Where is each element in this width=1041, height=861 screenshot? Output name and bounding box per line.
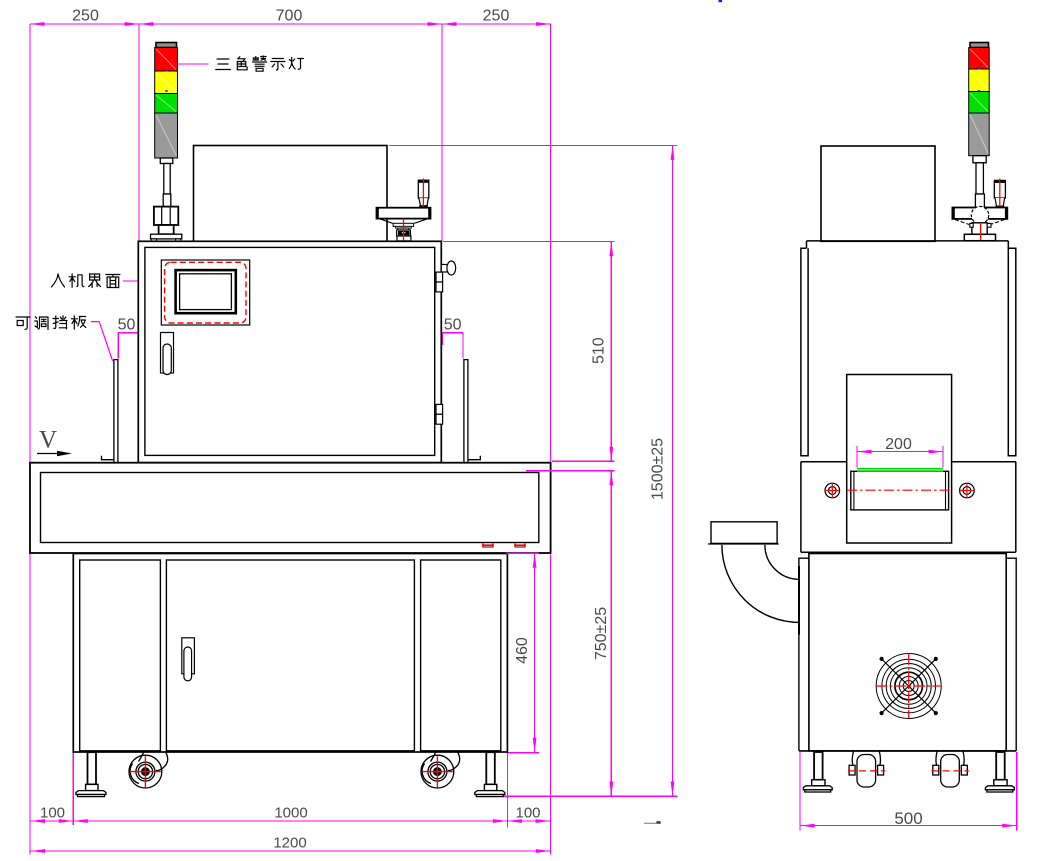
svg-text:1500±25: 1500±25 — [650, 438, 667, 500]
svg-text:1200: 1200 — [273, 835, 306, 852]
svg-text:50: 50 — [444, 317, 462, 334]
svg-text:1000: 1000 — [274, 805, 307, 822]
svg-text:460: 460 — [514, 637, 531, 664]
svg-text:700: 700 — [276, 8, 303, 25]
svg-text:500: 500 — [894, 809, 922, 828]
svg-text:750±25: 750±25 — [593, 607, 610, 660]
svg-text:V: V — [39, 427, 57, 454]
svg-text:250: 250 — [483, 8, 510, 25]
svg-text:100: 100 — [40, 805, 65, 822]
svg-text:200: 200 — [885, 436, 912, 453]
svg-text:250: 250 — [72, 8, 99, 25]
svg-text:50: 50 — [118, 317, 136, 334]
svg-text:510: 510 — [591, 337, 608, 364]
svg-text:100: 100 — [515, 805, 540, 822]
